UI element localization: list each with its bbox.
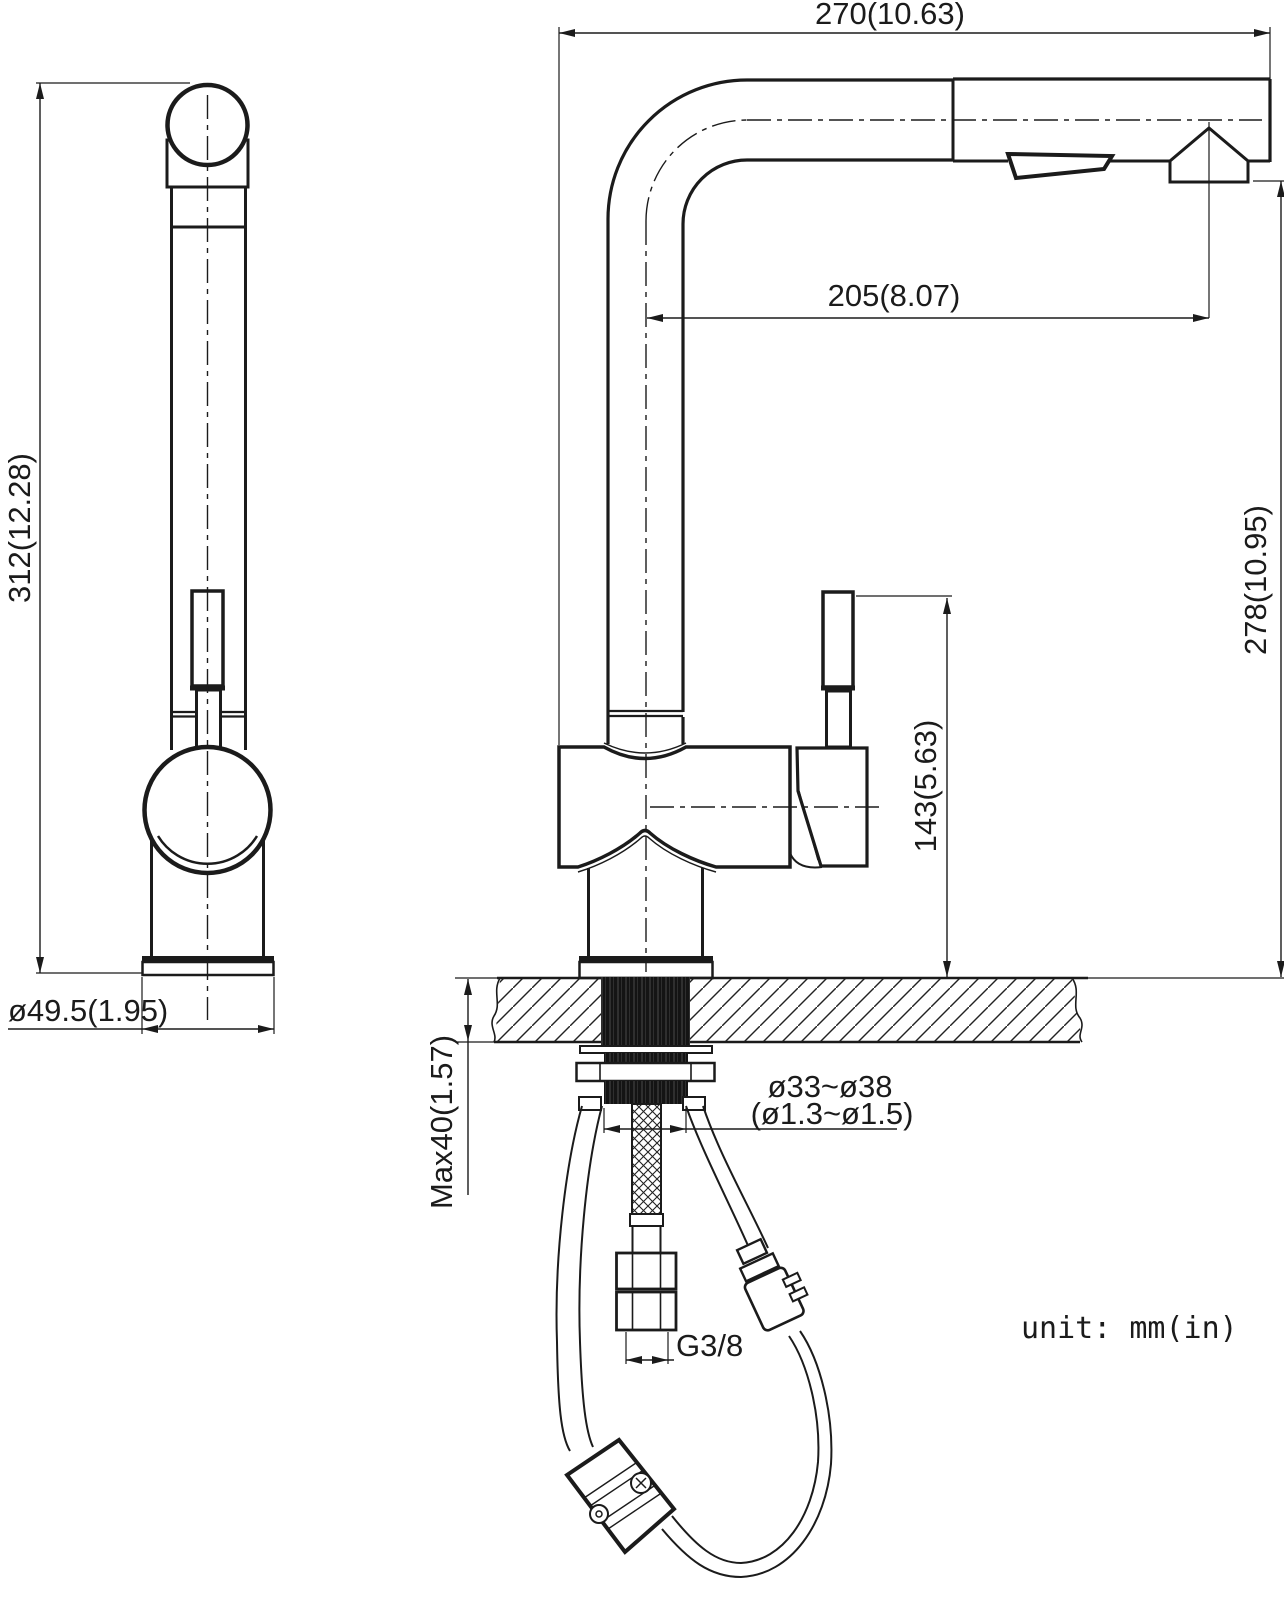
spout-outer-curve	[608, 80, 953, 219]
counterweight	[567, 1440, 674, 1552]
drawing-canvas: 270(10.63) 205(8.07) 312(12.28) ø49.5(1.…	[0, 0, 1284, 1618]
mounting-nut	[577, 1063, 715, 1081]
hose-left-inner	[579, 1106, 602, 1447]
hose-loop-outer	[662, 1331, 831, 1577]
countertop-section	[492, 978, 1088, 1042]
hose-loop-inner	[672, 1336, 818, 1563]
quick-connector	[729, 1231, 814, 1332]
connector-collar	[630, 1214, 663, 1226]
dim-front-height-label: 278(10.95)	[1238, 505, 1273, 655]
dim-deck-thickness: Max40(1.57)	[424, 978, 497, 1209]
spout-inner-curve	[683, 160, 953, 224]
side-view	[142, 85, 274, 1020]
shank-thread-low	[604, 1081, 688, 1104]
dim-handle-height: 143(5.63)	[856, 596, 952, 977]
faucet-dimension-drawing: 270(10.63) 205(8.07) 312(12.28) ø49.5(1.…	[0, 0, 1284, 1618]
unit-note: unit: mm(in)	[1021, 1311, 1238, 1346]
hose-left-outer	[557, 1106, 582, 1451]
countertop-hatch	[495, 979, 1082, 1041]
dim-spout-reach: 205(8.07)	[647, 122, 1209, 322]
dim-side-height-label: 312(12.28)	[2, 453, 37, 603]
hex-nut-upper	[617, 1253, 677, 1289]
dim-supply-thread: G3/8	[626, 1328, 743, 1364]
dim-spout-width-label: 270(10.63)	[815, 0, 965, 31]
dim-base-diameter-label: ø49.5(1.95)	[8, 993, 168, 1028]
side-handle-stem	[197, 690, 221, 752]
dim-front-height: 278(10.95)	[1088, 181, 1284, 978]
dim-deck-thickness-label: Max40(1.57)	[424, 1035, 459, 1209]
mounting-washer	[580, 1046, 712, 1053]
bend-centerline	[646, 120, 747, 221]
dim-handle-height-label: 143(5.63)	[908, 720, 943, 853]
hex-nut-lower	[617, 1292, 677, 1330]
dim-spout-width: 270(10.63)	[559, 0, 1270, 745]
counterweight-screw-2	[590, 1505, 608, 1523]
dim-base-diameter: ø49.5(1.95)	[8, 977, 274, 1034]
threaded-shank	[601, 977, 690, 1046]
front-handle-lever	[823, 592, 853, 687]
supply-connector	[617, 1104, 677, 1330]
spray-toggle-lever	[1008, 154, 1112, 178]
dim-supply-thread-label: G3/8	[676, 1328, 743, 1363]
shank-thread-mid	[604, 1053, 688, 1063]
braided-hose	[632, 1104, 661, 1214]
front-handle-stem	[827, 691, 851, 747]
dim-mounting-hole-in-label: (ø1.3~ø1.5)	[751, 1096, 914, 1131]
connector-tube	[633, 1226, 661, 1253]
dim-spout-reach-label: 205(8.07)	[828, 278, 961, 313]
